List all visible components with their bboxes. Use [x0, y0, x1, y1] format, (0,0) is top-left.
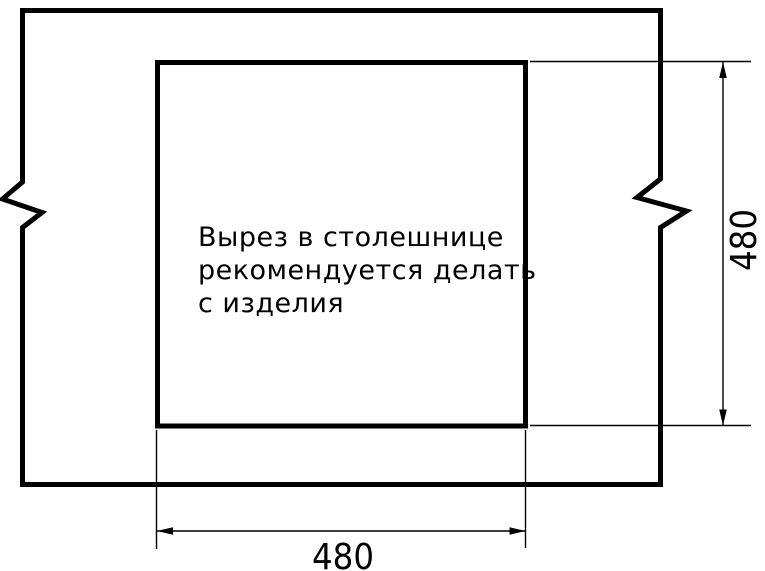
countertop-cutout-drawing: Вырез в столешнице рекомендуется делать …	[0, 0, 765, 571]
height-dimension-label: 480	[724, 209, 765, 271]
dimension-arrow-up	[719, 62, 727, 78]
note-line-1: Вырез в столешнице	[198, 222, 504, 253]
note-line-3: с изделия	[198, 288, 344, 319]
technical-drawing-page: Вырез в столешнице рекомендуется делать …	[0, 0, 765, 571]
dimension-arrow-down	[719, 410, 727, 426]
dimension-arrow-left	[157, 527, 173, 535]
width-dimension-label: 480	[312, 537, 374, 571]
dimension-arrow-right	[510, 527, 526, 535]
note-line-2: рекомендуется делать	[198, 255, 537, 286]
